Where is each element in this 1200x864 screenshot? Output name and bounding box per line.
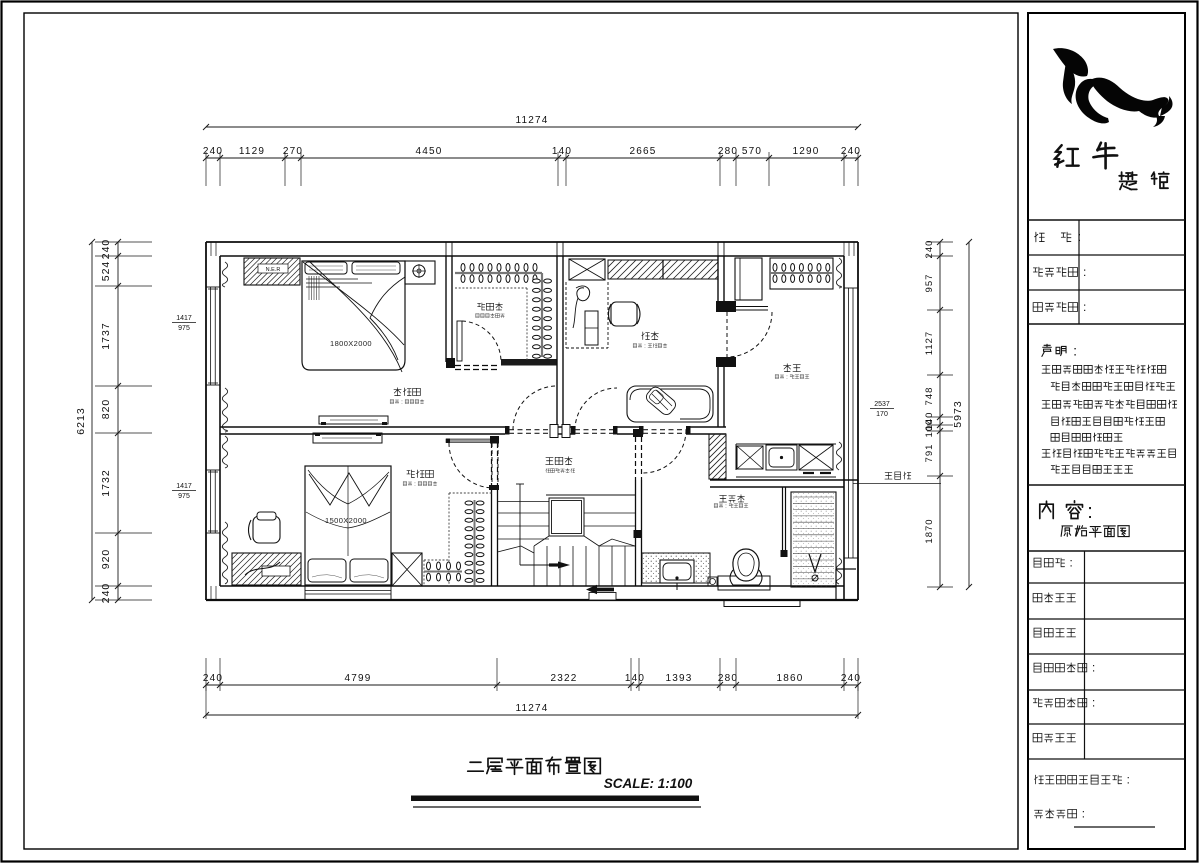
svg-text:270: 270: [283, 146, 303, 157]
svg-text::: :: [725, 503, 726, 509]
svg-text:280: 280: [718, 673, 738, 684]
svg-text:4450: 4450: [415, 146, 442, 157]
svg-text:920: 920: [100, 549, 112, 570]
svg-text::: :: [1087, 501, 1093, 523]
svg-text:570: 570: [742, 146, 762, 157]
svg-text:1417: 1417: [176, 315, 192, 322]
svg-text:240: 240: [924, 240, 935, 259]
svg-text:6213: 6213: [75, 407, 87, 434]
svg-text:1737: 1737: [100, 322, 112, 349]
svg-text:100: 100: [924, 419, 935, 438]
svg-text:5973: 5973: [952, 400, 964, 427]
svg-text:11274: 11274: [515, 115, 548, 126]
svg-text::: :: [1083, 265, 1086, 279]
svg-text::: :: [1083, 300, 1086, 314]
svg-text:240: 240: [841, 146, 861, 157]
svg-text:1732: 1732: [100, 469, 112, 496]
svg-text:140: 140: [552, 146, 572, 157]
svg-text:1417: 1417: [176, 483, 192, 490]
svg-text:524: 524: [100, 261, 112, 282]
svg-text:280: 280: [718, 146, 738, 157]
svg-text:748: 748: [924, 387, 935, 406]
svg-text:240: 240: [841, 673, 861, 684]
svg-text::: :: [1092, 697, 1095, 709]
svg-text:2537: 2537: [874, 401, 890, 408]
svg-text::: :: [786, 374, 787, 380]
svg-text:1870: 1870: [924, 518, 935, 543]
svg-text:140: 140: [625, 673, 645, 684]
svg-text:170: 170: [876, 411, 888, 418]
svg-text:1860: 1860: [776, 673, 803, 684]
svg-text:4799: 4799: [344, 673, 371, 684]
svg-text::: :: [1073, 343, 1077, 359]
svg-text::: :: [401, 399, 402, 405]
svg-text:1500X2000: 1500X2000: [325, 516, 367, 525]
svg-text:975: 975: [178, 493, 190, 500]
svg-text:2665: 2665: [629, 146, 656, 157]
svg-text:11274: 11274: [515, 703, 548, 714]
svg-text:240: 240: [100, 239, 112, 260]
svg-text:1290: 1290: [792, 146, 819, 157]
svg-text::: :: [1070, 557, 1073, 569]
svg-text:2322: 2322: [550, 673, 577, 684]
svg-text::: :: [1078, 230, 1082, 244]
svg-text:1800X2000: 1800X2000: [330, 339, 372, 348]
svg-text:240: 240: [100, 583, 112, 604]
svg-text::: :: [414, 481, 415, 487]
svg-text:N.E.R: N.E.R: [266, 267, 281, 273]
svg-text:1129: 1129: [239, 146, 265, 157]
svg-text:240: 240: [203, 146, 223, 157]
svg-text:957: 957: [924, 274, 935, 293]
svg-text::: :: [1092, 662, 1095, 674]
svg-text:240: 240: [203, 673, 223, 684]
svg-text::: :: [644, 343, 645, 349]
svg-text:791: 791: [924, 444, 935, 463]
svg-text::: :: [1127, 774, 1130, 786]
svg-text:1127: 1127: [924, 331, 935, 355]
svg-text::: :: [1082, 808, 1085, 820]
svg-text:975: 975: [178, 325, 190, 332]
svg-text:820: 820: [100, 399, 112, 420]
svg-text:SCALE: 1:100: SCALE: 1:100: [604, 776, 693, 791]
svg-text:1393: 1393: [665, 673, 692, 684]
